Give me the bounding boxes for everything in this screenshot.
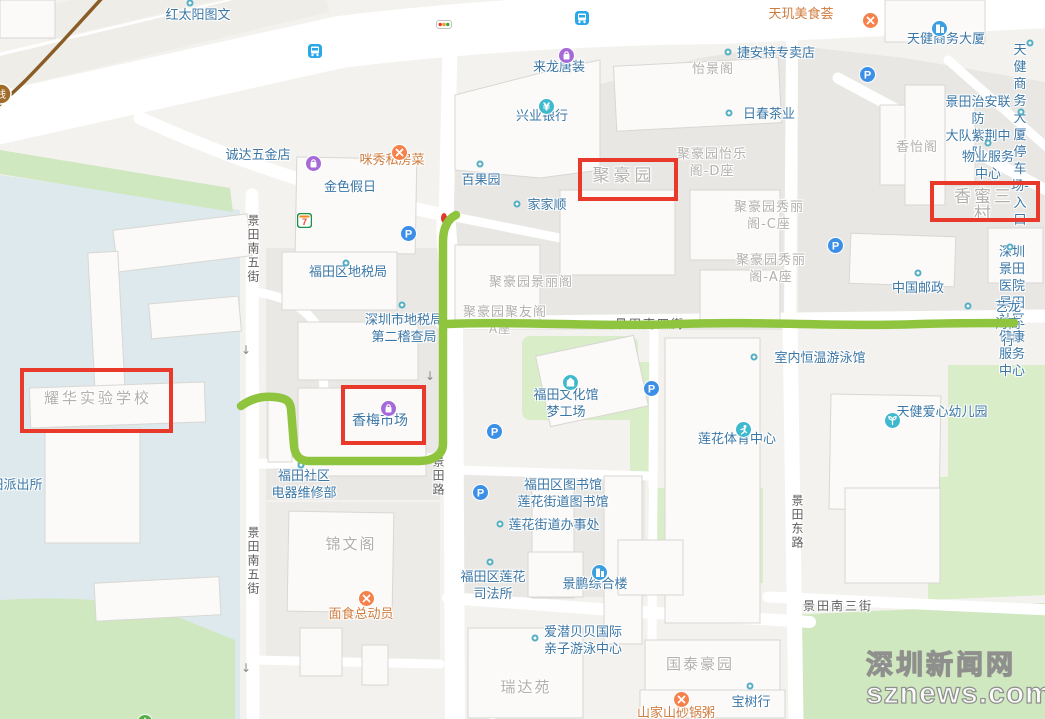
poi-label[interactable]: 百果园 — [461, 172, 500, 189]
road-label: 景田南五街 — [246, 526, 260, 596]
poi-dot-icon — [965, 303, 972, 310]
poi-dot-icon — [1018, 109, 1025, 116]
road-label: 景田南四街 — [615, 316, 685, 333]
svg-text:P: P — [648, 384, 655, 396]
poi-dot-icon — [1007, 244, 1014, 251]
poi-label[interactable]: 诚达五金店 — [225, 147, 290, 164]
road-direction-arrow: ↓ — [241, 342, 251, 359]
poi-label[interactable]: 莲花街道办事处 — [508, 517, 599, 534]
watermark-en: sznews.com — [866, 679, 1045, 709]
poi-dot-icon — [497, 521, 504, 528]
area-label: 怡景阁 — [692, 61, 734, 78]
map-canvas[interactable]: 线 红太阳图文来龙唐装捷安特专卖店天健商务大厦天健商务大厦 停车场-入口兴业银行… — [0, 0, 1045, 719]
highlight-box — [578, 158, 678, 201]
area-label: 聚豪园聚友阁 — [463, 304, 547, 321]
area-label: 聚豪园怡乐 阁-D座 — [677, 146, 747, 180]
poi-dot-icon — [747, 683, 754, 690]
svg-text:¥: ¥ — [543, 102, 551, 114]
labels-layer: 红太阳图文来龙唐装捷安特专卖店天健商务大厦天健商务大厦 停车场-入口兴业银行日春… — [0, 0, 1045, 719]
road-direction-arrow: ↓ — [425, 368, 435, 385]
area-label: 锦文阁 — [325, 536, 376, 553]
poi-dot-icon — [187, 0, 194, 7]
svg-text:P: P — [405, 229, 412, 241]
poi-label[interactable]: 金色假日 — [324, 179, 376, 196]
poi-dot-icon — [532, 635, 539, 642]
poi-label[interactable]: 宝树行 — [731, 694, 770, 711]
poi-label[interactable]: 天玑美食荟 — [768, 6, 833, 23]
watermark-cn: 深圳新闻网 — [866, 652, 1045, 679]
svg-text:P: P — [832, 241, 839, 253]
svg-text:P: P — [491, 427, 498, 439]
poi-dot-icon — [487, 559, 494, 566]
svg-text:7: 7 — [302, 217, 307, 227]
poi-label[interactable]: 面食总动员 — [328, 606, 393, 623]
poi-dot-icon — [915, 270, 922, 277]
poi-dot-icon — [477, 161, 484, 168]
area-label: 香怡阁 — [896, 139, 938, 156]
area-label: 国泰豪园 — [666, 656, 734, 673]
poi-label[interactable]: 景田派出所 — [0, 477, 43, 494]
poi-label[interactable]: 天健爱心幼儿园 — [896, 404, 987, 421]
road-label: 景田路 — [431, 455, 445, 497]
highlight-box — [930, 181, 1040, 222]
poi-dot-icon — [751, 354, 758, 361]
watermark: 深圳新闻网 sznews.com — [866, 652, 1045, 709]
poi-label[interactable]: 艺龙海商行 — [990, 299, 1027, 350]
road-label: 景田东路 — [790, 494, 804, 550]
poi-dot-icon — [298, 462, 305, 469]
poi-dot-icon — [725, 49, 732, 56]
poi-label[interactable]: 福田社区 电器维修部 — [271, 468, 336, 502]
area-label: 聚豪园秀丽 阁-A座 — [736, 252, 806, 286]
poi-label[interactable]: 捷安特专卖店 — [737, 45, 815, 62]
poi-dot-icon — [343, 260, 350, 267]
highlight-box — [20, 368, 173, 433]
poi-label[interactable]: 中国邮政 — [892, 280, 944, 297]
highlight-box — [341, 385, 426, 445]
poi-label[interactable]: 日春茶业 — [743, 106, 795, 123]
poi-dot-icon — [985, 140, 992, 147]
poi-label[interactable]: 室内恒温游泳馆 — [774, 350, 865, 367]
poi-label[interactable]: 福田区地税局 — [309, 264, 387, 281]
area-label: 瑞达苑 — [500, 679, 551, 696]
svg-text:P: P — [864, 70, 871, 82]
poi-label[interactable]: 家家顺 — [527, 197, 566, 214]
poi-label[interactable]: 深圳市地税局 第二稽查局 — [365, 312, 443, 346]
poi-dot-icon — [399, 302, 406, 309]
road-direction-arrow: ↓ — [241, 660, 251, 677]
poi-label[interactable]: 福田文化馆 梦工场 — [533, 387, 598, 421]
poi-dot-icon — [514, 201, 521, 208]
area-label: 聚豪园秀丽 阁-C座 — [734, 199, 804, 233]
poi-dot-icon — [1027, 40, 1034, 47]
poi-label[interactable]: 红太阳图文 — [165, 7, 230, 24]
road-label: 景田南三街 — [803, 598, 873, 615]
road-label: 景田南五街 — [246, 214, 260, 284]
area-label: 聚豪园景丽阁 — [489, 274, 573, 291]
poi-label[interactable]: 物业服务中心 — [960, 149, 1017, 183]
poi-label[interactable]: 福田区图书馆 莲花街道图书馆 — [517, 477, 608, 511]
area-label: A座 — [489, 321, 511, 338]
poi-dot-icon — [726, 110, 733, 117]
poi-label[interactable]: 爱潜贝贝国际 亲子游泳中心 — [544, 624, 622, 658]
poi-label[interactable]: 福田区莲花 司法所 — [460, 569, 525, 603]
svg-text:P: P — [477, 488, 484, 500]
